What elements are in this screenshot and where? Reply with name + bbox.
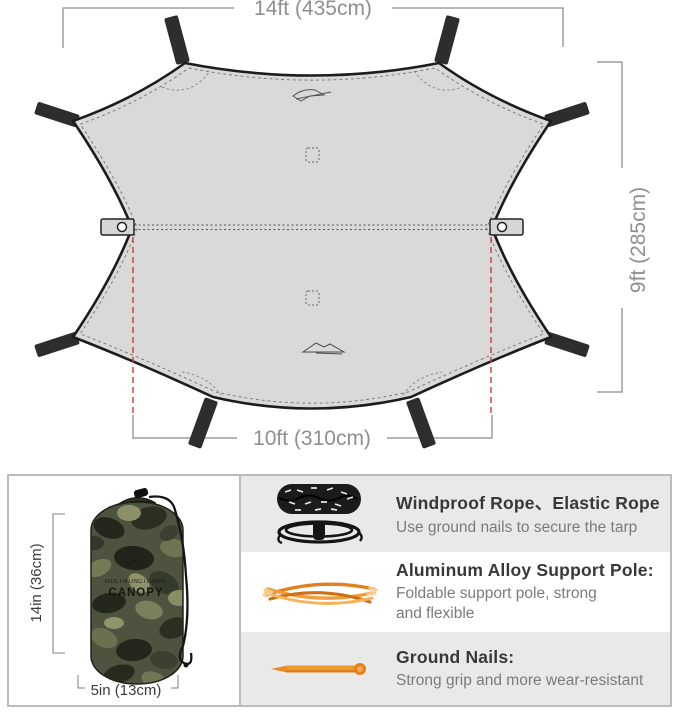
tarp-diagram: 14ft (435cm) 9ft (285cm) 10ft (310cm): [0, 0, 679, 463]
accessory-row-nails: Ground Nails: Strong grip and more wear-…: [241, 632, 670, 705]
storage-bag: MULTIFUNCTIONAL CANOPY: [79, 488, 201, 694]
bag-width-label: 5in (13cm): [66, 682, 186, 699]
grommet-left: [118, 223, 127, 232]
side-height-label: 9ft (285cm): [627, 187, 650, 293]
accessory-title: Windproof Rope、Elastic Rope: [396, 490, 660, 515]
bag-height-bracket: [49, 513, 71, 655]
strap-top-left: [164, 15, 190, 65]
grommet-tab-left: [101, 219, 134, 235]
accessory-desc: Strong grip and more wear-resistant: [396, 671, 643, 691]
accessory-row-ropes: Windproof Rope、Elastic Rope Use ground n…: [241, 476, 670, 552]
accessory-desc: Use ground nails to secure the tarp: [396, 518, 660, 538]
windproof-rope-icon: [277, 484, 361, 514]
strap-upper-right: [544, 102, 590, 128]
strap-upper-left: [34, 102, 80, 128]
contents-panel: 14in (36cm): [7, 474, 672, 707]
package-section: 14in (36cm): [9, 476, 241, 705]
product-infographic: 14ft (435cm) 9ft (285cm) 10ft (310cm): [0, 0, 679, 713]
accessory-desc: Foldable support pole, strong and flexib…: [396, 584, 654, 624]
bag-print-line2: CANOPY: [108, 587, 163, 599]
cord-knot: [184, 663, 189, 668]
accessory-list: Windproof Rope、Elastic Rope Use ground n…: [241, 476, 670, 705]
accessory-title: Ground Nails:: [396, 647, 643, 668]
elastic-rope-icon: [278, 522, 361, 543]
bag-height-label: 14in (36cm): [28, 518, 48, 648]
bag-print-line1: MULTIFUNCTIONAL: [105, 579, 167, 585]
nail-icon: [241, 662, 396, 676]
accessory-row-poles: Aluminum Alloy Support Pole: Foldable su…: [241, 552, 670, 632]
side-height-bracket: [597, 62, 622, 392]
grommet-right: [498, 223, 507, 232]
strap-top-right: [434, 15, 460, 65]
rope-icon: [241, 482, 396, 546]
top-width-label: 14ft (435cm): [254, 0, 372, 20]
strap-bottom-left: [188, 397, 218, 449]
accessory-title: Aluminum Alloy Support Pole:: [396, 560, 654, 581]
grommet-tab-right: [490, 219, 523, 235]
bottom-width-label: 10ft (310cm): [253, 427, 371, 450]
strap-bottom-right: [406, 397, 436, 449]
pole-icon: [241, 569, 396, 615]
cord-toggle: [133, 488, 149, 499]
tarp-shape: [73, 63, 551, 409]
